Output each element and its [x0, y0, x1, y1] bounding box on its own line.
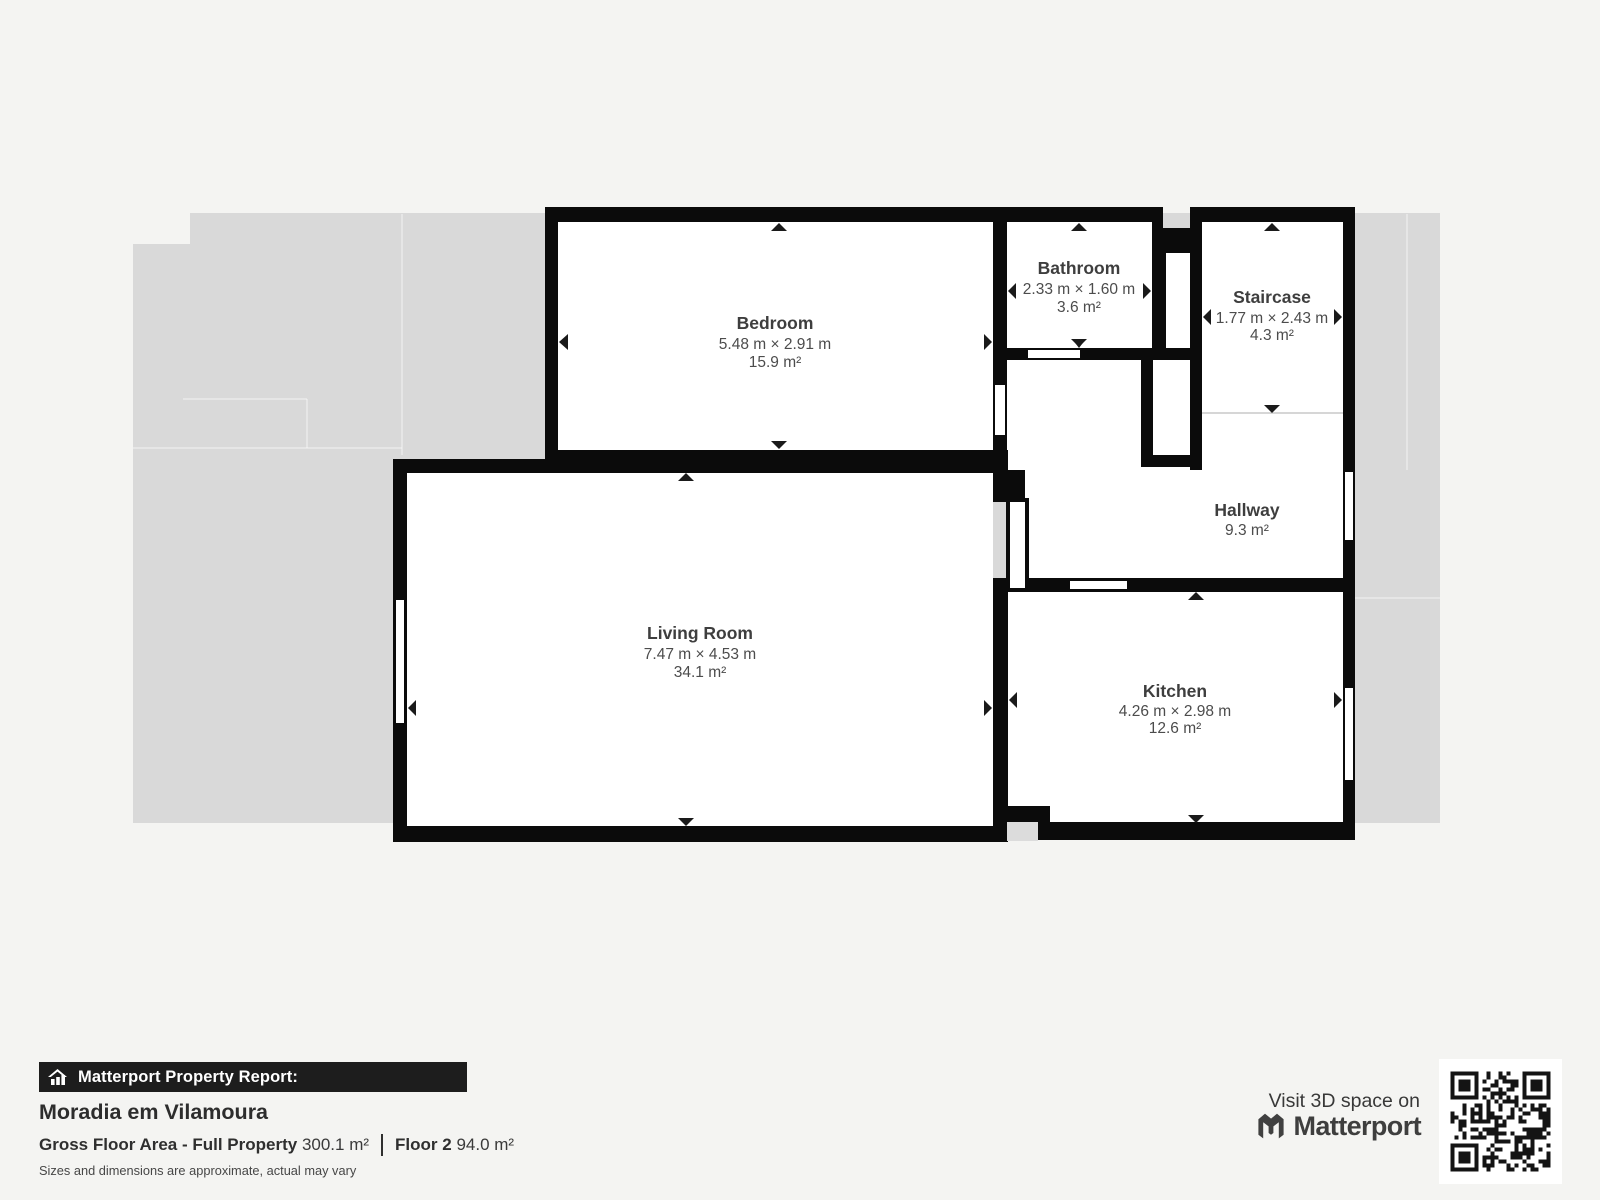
- floor-value: 94.0 m²: [456, 1135, 514, 1155]
- bedroom-area: 15.9 m²: [749, 354, 802, 371]
- matterport-wordmark: Matterport: [1294, 1111, 1422, 1142]
- kitchen-label: Kitchen: [1143, 681, 1207, 701]
- bathroom-dimensions: 2.33 m × 1.60 m: [1023, 281, 1135, 298]
- shaft-void: [1153, 360, 1190, 455]
- floor-plan: Bedroom 5.48 m × 2.91 m 15.9 m² Bathroom…: [0, 0, 1600, 1200]
- kitchen-window: [1345, 688, 1353, 780]
- bedroom-door: [995, 385, 1005, 435]
- visit-3d-text: Visit 3D space on: [1269, 1090, 1420, 1113]
- stats-divider: [381, 1134, 383, 1156]
- entry-notch: [1163, 213, 1190, 228]
- bathroom-area: 3.6 m²: [1057, 299, 1101, 316]
- qr-code: [1439, 1059, 1562, 1184]
- kitchen-area: 12.6 m²: [1149, 720, 1202, 737]
- floor-label: Floor 2: [395, 1135, 452, 1155]
- hallway-window: [1345, 472, 1353, 540]
- bedroom-label: Bedroom: [737, 313, 814, 333]
- house-chart-icon: [48, 1068, 68, 1086]
- qr-pattern: [1439, 1059, 1562, 1184]
- report-header-label: Matterport Property Report:: [78, 1068, 298, 1087]
- staircase-label: Staircase: [1233, 287, 1311, 307]
- matterport-brand: Matterport: [1256, 1111, 1422, 1142]
- hallway-area: 9.3 m²: [1225, 522, 1269, 539]
- kitchen-door: [1070, 581, 1127, 589]
- matterport-logo-icon: [1256, 1112, 1286, 1142]
- disclaimer-note: Sizes and dimensions are approximate, ac…: [39, 1163, 356, 1178]
- living-room-window: [396, 600, 404, 723]
- living-room-label: Living Room: [647, 623, 753, 643]
- property-report-page: Bedroom 5.48 m × 2.91 m 15.9 m² Bathroom…: [0, 0, 1600, 1200]
- pocket-door-leaf: [1010, 502, 1025, 588]
- living-room-dimensions: 7.47 m × 4.53 m: [644, 646, 756, 663]
- floor-area-stats: Gross Floor Area - Full Property 300.1 m…: [39, 1134, 514, 1156]
- staircase-dimensions: 1.77 m × 2.43 m: [1216, 310, 1328, 327]
- hallway-label: Hallway: [1214, 500, 1279, 520]
- bathroom-door: [1028, 350, 1080, 358]
- duct-strip-floor: [1166, 253, 1190, 348]
- staircase-area: 4.3 m²: [1250, 327, 1294, 344]
- property-name: Moradia em Vilamoura: [39, 1100, 268, 1125]
- bedroom-dimensions: 5.48 m × 2.91 m: [719, 336, 831, 353]
- report-header-bar: Matterport Property Report:: [39, 1062, 467, 1092]
- bathroom-label: Bathroom: [1038, 258, 1121, 278]
- gross-floor-area-label: Gross Floor Area - Full Property: [39, 1135, 297, 1155]
- bottom-notch-patch: [1007, 822, 1038, 841]
- living-room-area: 34.1 m²: [674, 664, 727, 681]
- gross-floor-area-value: 300.1 m²: [302, 1135, 369, 1155]
- kitchen-dimensions: 4.26 m × 2.98 m: [1119, 703, 1231, 720]
